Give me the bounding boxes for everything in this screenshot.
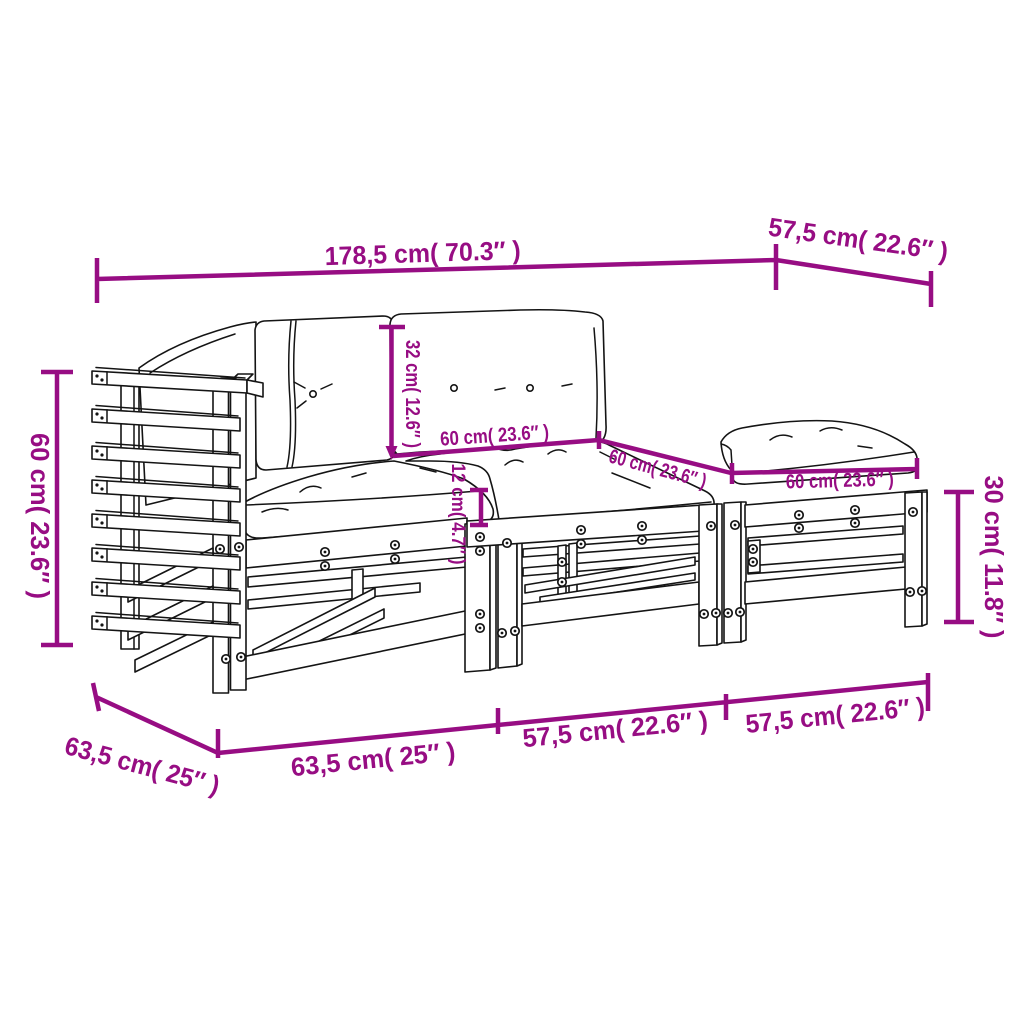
svg-text:12 cm( 4.7″ ): 12 cm( 4.7″ )	[447, 464, 468, 565]
svg-text:32 cm( 12.6″ ): 32 cm( 12.6″ )	[401, 340, 423, 448]
svg-text:30 cm( 11.8″ ): 30 cm( 11.8″ )	[979, 476, 1009, 639]
svg-text:60 cm( 23.6″ ): 60 cm( 23.6″ )	[786, 469, 895, 494]
svg-text:60 cm( 23.6″ ): 60 cm( 23.6″ )	[25, 433, 55, 599]
svg-text:178,5 cm( 70.3″ ): 178,5 cm( 70.3″ )	[324, 235, 521, 271]
